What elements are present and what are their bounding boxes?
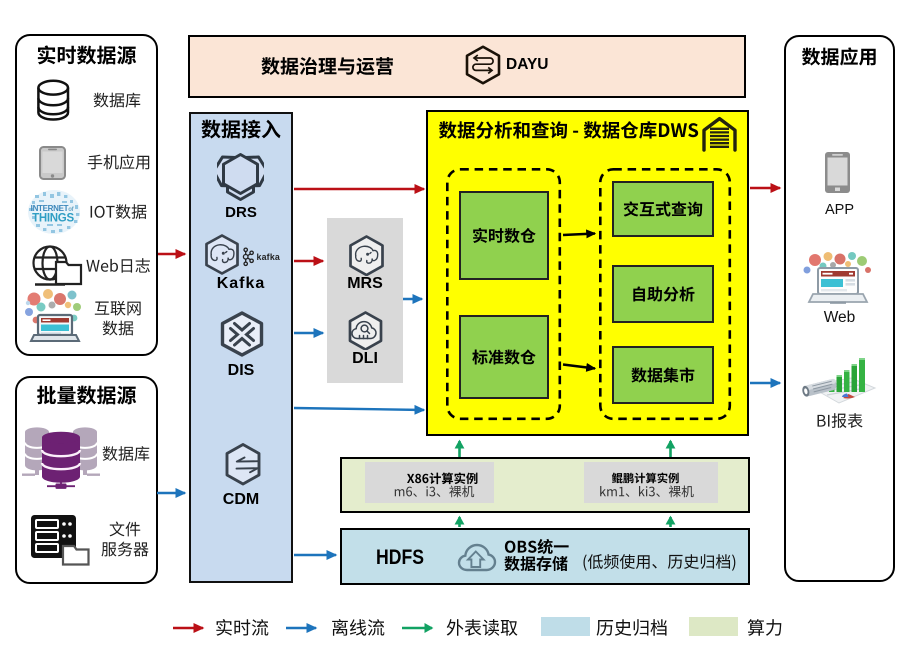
svg-text:THINGS: THINGS <box>32 213 74 225</box>
svg-text:kafka: kafka <box>257 252 281 262</box>
